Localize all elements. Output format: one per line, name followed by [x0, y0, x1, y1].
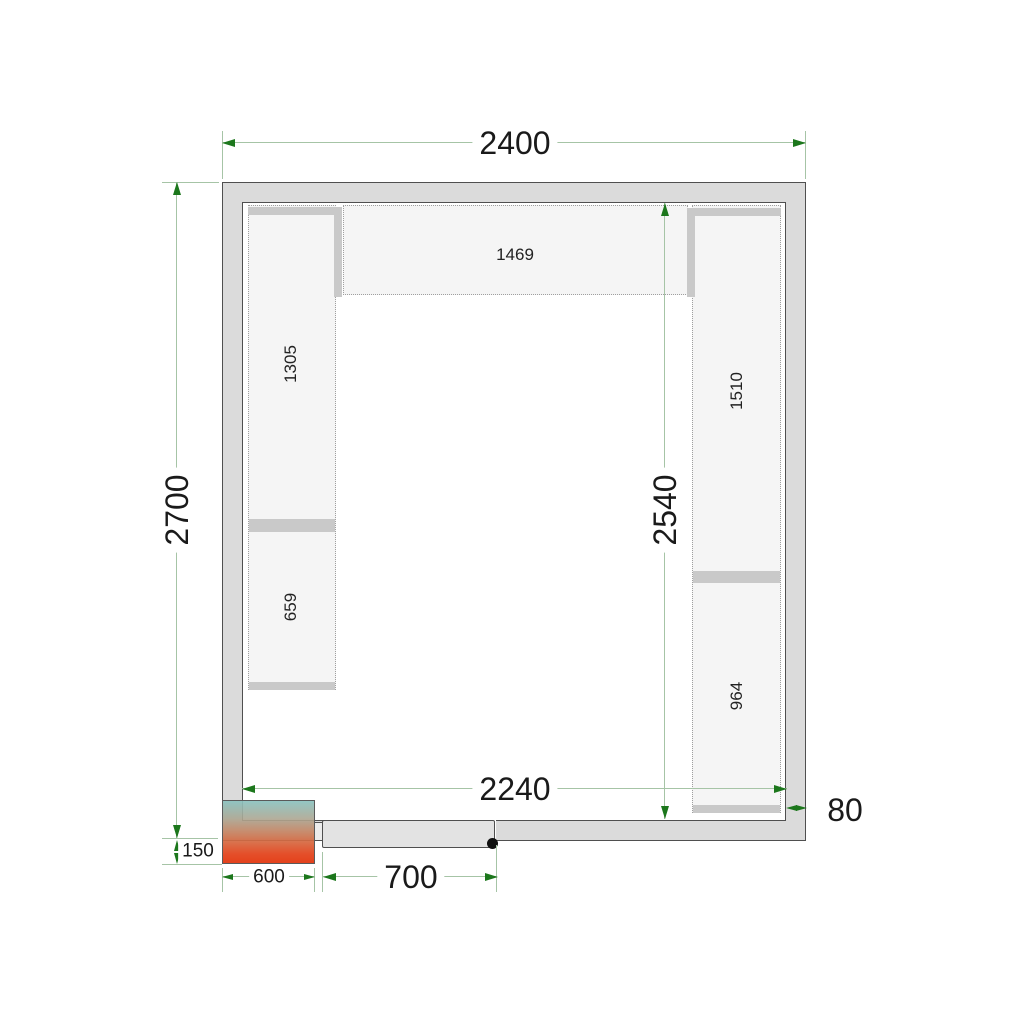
shelf-divider-bar	[249, 682, 335, 690]
extension-line	[222, 868, 223, 892]
arrowhead-icon	[242, 785, 255, 793]
shelf-support-bar	[687, 208, 781, 216]
shelf-support-bar	[334, 207, 342, 297]
arrowhead-icon	[222, 874, 233, 880]
door-leaf	[322, 820, 495, 848]
shelf-divider-bar	[693, 805, 780, 813]
arrowhead-icon	[304, 874, 315, 880]
arrowhead-icon	[485, 873, 498, 881]
shelf-length-label: 1305	[281, 345, 301, 383]
extension-line	[496, 845, 497, 892]
shelf-length-label: 1469	[496, 245, 534, 265]
dimension-label-outer-height: 2700	[160, 467, 194, 552]
shelf-length-label: 1510	[727, 372, 747, 410]
dimension-label-inner-width: 2240	[472, 772, 557, 806]
extension-line	[162, 864, 222, 865]
extension-line	[314, 868, 315, 892]
shelf-divider-bar	[693, 571, 780, 583]
dimension-label-outer-width: 2400	[472, 126, 557, 160]
condensing-unit-thermal-block	[222, 800, 315, 864]
floor-plan: 1469 1305 659 1510 964 2400 2700 2540 22…	[0, 0, 1024, 1024]
extension-line	[162, 838, 218, 839]
extension-line	[162, 182, 219, 183]
dimension-label-unit-width: 600	[249, 867, 289, 888]
dimension-label-door-width: 700	[377, 860, 444, 894]
shelf-support-bar	[687, 208, 695, 297]
shelf-support-bar	[248, 207, 342, 215]
shelf-right	[692, 205, 781, 813]
arrowhead-icon	[222, 139, 235, 147]
arrowhead-icon	[661, 203, 669, 216]
arrowhead-icon	[661, 806, 669, 819]
arrowhead-icon	[173, 182, 181, 195]
shelf-length-label: 964	[727, 682, 747, 710]
dimension-label-unit-depth: 150	[178, 841, 218, 862]
arrowhead-icon	[323, 873, 336, 881]
arrowhead-icon	[774, 785, 787, 793]
dimension-label-inner-height: 2540	[648, 467, 682, 552]
extension-line	[322, 852, 323, 892]
shelf-divider-bar	[249, 519, 335, 532]
arrowhead-icon	[793, 139, 806, 147]
dimension-label-wall-thickness: 80	[820, 793, 870, 827]
arrowhead-icon	[796, 805, 807, 811]
shelf-length-label: 659	[281, 593, 301, 621]
arrowhead-icon	[174, 827, 180, 838]
